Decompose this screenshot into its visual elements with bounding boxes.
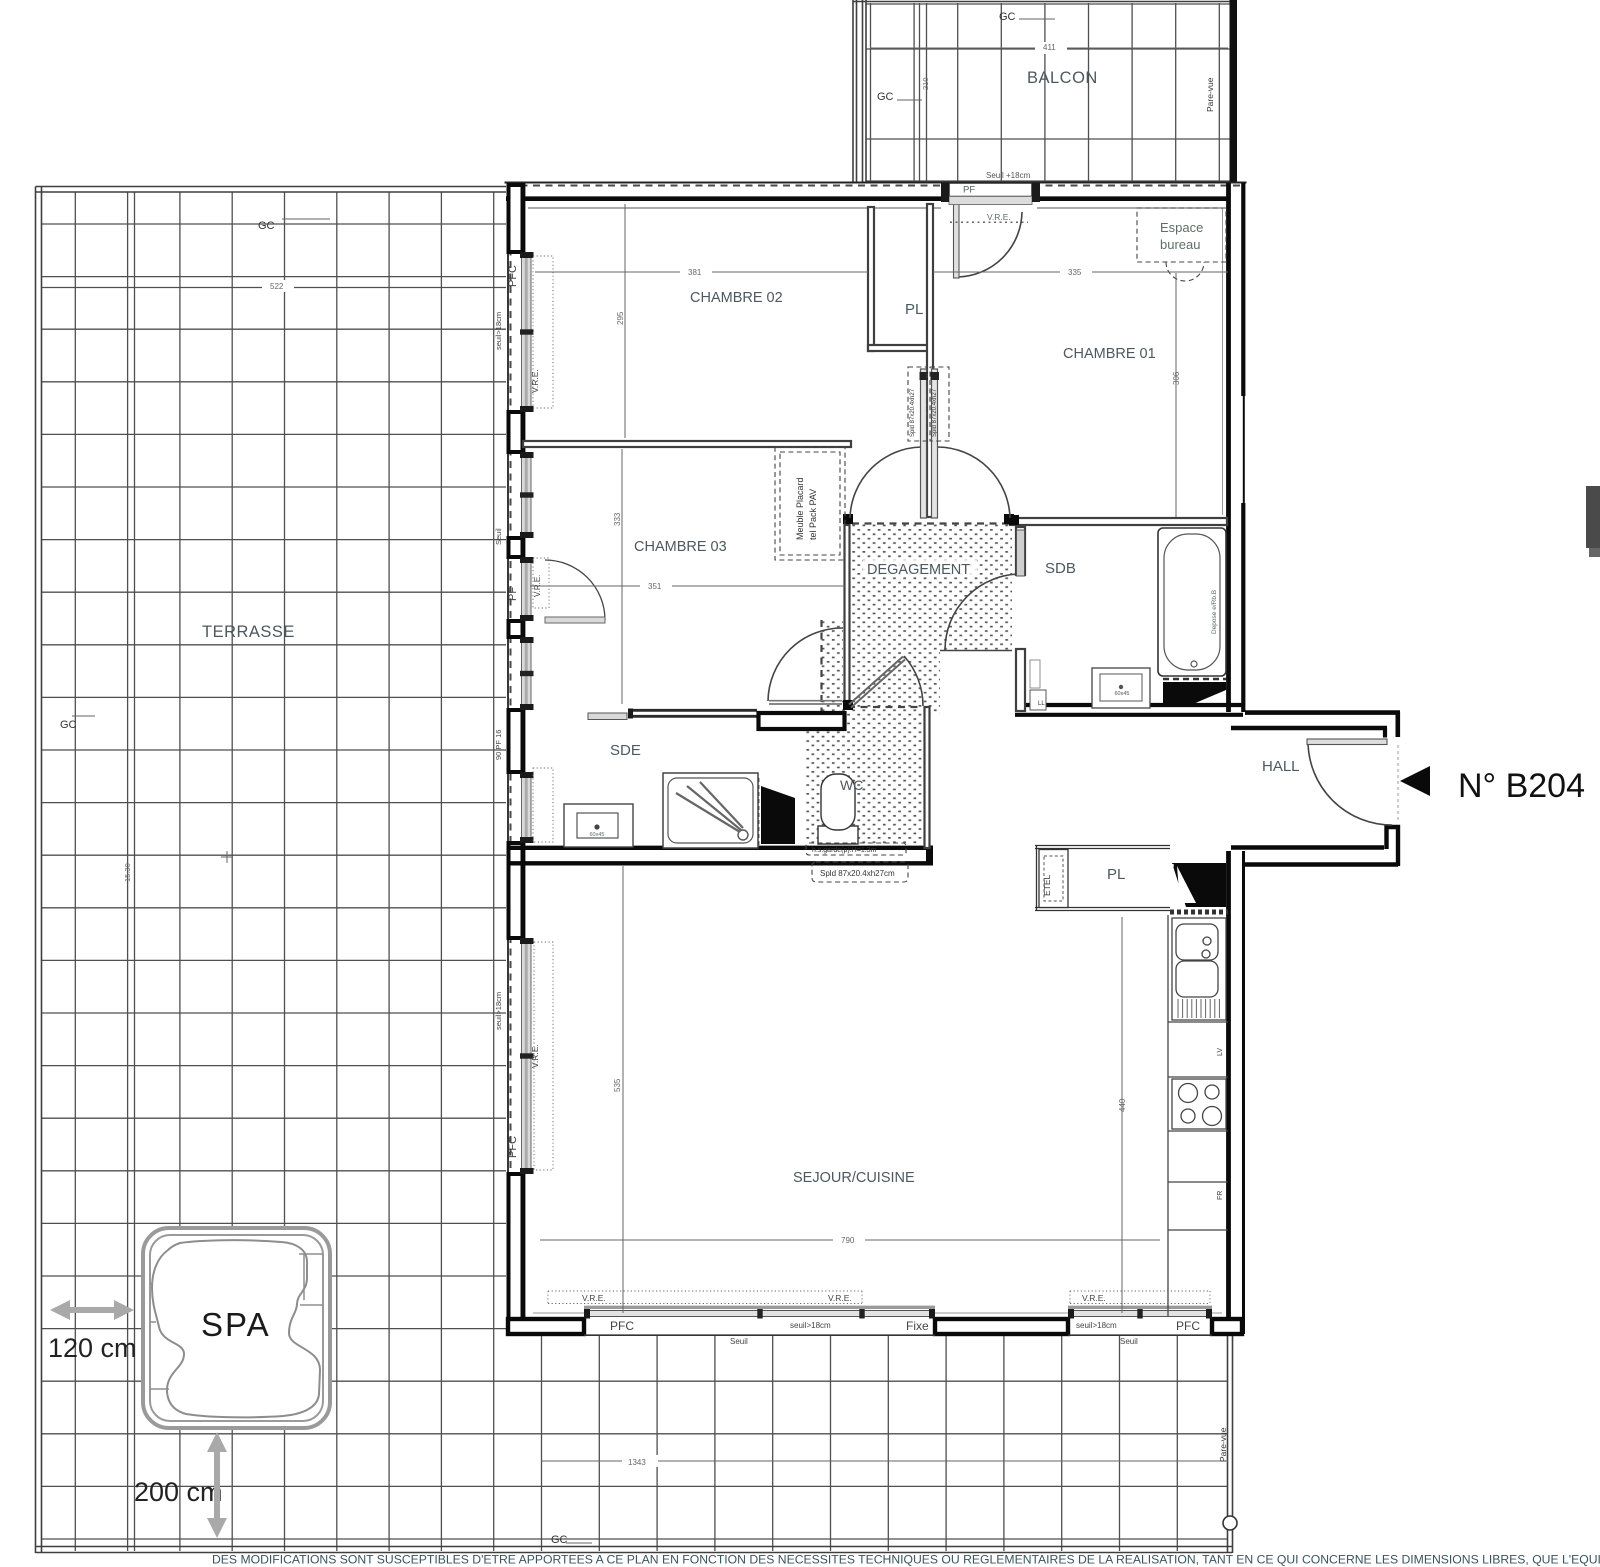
- svg-text:LV: LV: [1217, 1048, 1224, 1056]
- svg-text:Spld 87x20.4xh27: Spld 87x20.4xh27: [910, 388, 916, 437]
- svg-text:90 PF 16: 90 PF 16: [494, 730, 503, 760]
- svg-text:V.R.E.: V.R.E.: [828, 1293, 852, 1303]
- svg-text:Seuil: Seuil: [1120, 1337, 1138, 1346]
- svg-text:tel Pack PAV: tel Pack PAV: [808, 489, 818, 540]
- svg-text:BALCON: BALCON: [1027, 69, 1098, 87]
- svg-text:522: 522: [270, 282, 284, 291]
- svg-text:V.R.E.: V.R.E.: [582, 1293, 606, 1303]
- svg-text:V.R.E.: V.R.E.: [530, 369, 540, 393]
- svg-text:GC: GC: [877, 91, 894, 103]
- svg-text:Seuil +18cm: Seuil +18cm: [986, 171, 1031, 180]
- svg-text:1343: 1343: [628, 1458, 646, 1467]
- svg-text:seuil>18cm: seuil>18cm: [494, 992, 503, 1030]
- svg-text:HALL: HALL: [1262, 758, 1300, 775]
- svg-text:GC: GC: [551, 1534, 568, 1546]
- svg-text:335: 335: [1068, 268, 1082, 277]
- svg-text:Seuil: Seuil: [494, 528, 503, 545]
- svg-text:V.R.E.: V.R.E.: [530, 1044, 540, 1068]
- svg-text:h.s.garde(p):H=1.3m: h.s.garde(p):H=1.3m: [812, 847, 877, 854]
- svg-text:GC: GC: [258, 220, 275, 232]
- svg-text:V.R.E.: V.R.E.: [1082, 1293, 1106, 1303]
- svg-text:295: 295: [616, 311, 625, 325]
- svg-text:SDB: SDB: [1045, 560, 1076, 577]
- svg-text:60x45: 60x45: [590, 832, 605, 838]
- svg-text:LL: LL: [1038, 701, 1045, 707]
- svg-text:FR: FR: [1217, 1191, 1224, 1200]
- svg-text:PF: PF: [963, 185, 975, 196]
- svg-text:PFC: PFC: [507, 1136, 519, 1158]
- svg-text:200 cm: 200 cm: [134, 1477, 223, 1507]
- svg-text:381: 381: [688, 268, 702, 277]
- svg-text:351: 351: [648, 582, 662, 591]
- svg-text:GC: GC: [999, 11, 1016, 23]
- svg-text:Pare-vue: Pare-vue: [1205, 77, 1215, 112]
- svg-text:440: 440: [1118, 1098, 1127, 1112]
- svg-text:seuil>18cm: seuil>18cm: [1076, 1321, 1117, 1330]
- svg-text:535: 535: [613, 1078, 622, 1092]
- svg-text:Meuble Placard: Meuble Placard: [795, 477, 805, 540]
- svg-text:PFC: PFC: [610, 1319, 634, 1333]
- svg-text:Spld 87x20.4xh27cm: Spld 87x20.4xh27cm: [820, 869, 895, 878]
- svg-text:TERRASSE: TERRASSE: [202, 623, 295, 641]
- svg-text:15.30: 15.30: [123, 863, 132, 882]
- svg-text:V.R.E.: V.R.E.: [987, 212, 1011, 222]
- svg-text:306: 306: [1172, 371, 1181, 385]
- svg-text:SDE: SDE: [610, 742, 641, 759]
- svg-text:Pare-vue: Pare-vue: [1218, 1427, 1228, 1462]
- svg-text:Seuil: Seuil: [730, 1337, 748, 1346]
- svg-text:GC: GC: [60, 719, 77, 731]
- svg-text:DEGAGEMENT: DEGAGEMENT: [867, 562, 970, 578]
- svg-text:790: 790: [841, 1236, 855, 1245]
- svg-text:411: 411: [1043, 43, 1056, 52]
- svg-text:SEJOUR/CUISINE: SEJOUR/CUISINE: [793, 1170, 915, 1186]
- svg-text:CHAMBRE 01: CHAMBRE 01: [1063, 346, 1156, 362]
- svg-text:PFC: PFC: [507, 265, 519, 287]
- svg-text:bureau: bureau: [1160, 237, 1200, 252]
- svg-text:SPA: SPA: [201, 1306, 271, 1343]
- svg-text:PL: PL: [905, 301, 923, 318]
- svg-text:210: 210: [921, 77, 930, 90]
- svg-text:PFC: PFC: [1176, 1319, 1200, 1333]
- svg-text:V.R.E.: V.R.E.: [533, 575, 542, 597]
- svg-text:N° B204: N° B204: [1458, 767, 1585, 805]
- svg-text:seuil>18cm: seuil>18cm: [494, 312, 503, 350]
- svg-text:60x45: 60x45: [1115, 691, 1130, 697]
- svg-text:DES MODIFICATIONS SONT SUSCEPT: DES MODIFICATIONS SONT SUSCEPTIBLES D'ET…: [212, 1553, 1600, 1567]
- svg-text:Depose e/Rb.B: Depose e/Rb.B: [1211, 590, 1218, 634]
- svg-text:Espace: Espace: [1160, 220, 1203, 235]
- svg-text:333: 333: [613, 512, 622, 526]
- svg-text:Spld 87x20.4xh27: Spld 87x20.4xh27: [932, 388, 938, 437]
- svg-text:ETEL: ETEL: [1042, 874, 1052, 896]
- svg-text:PL: PL: [1107, 866, 1125, 883]
- svg-text:CHAMBRE 02: CHAMBRE 02: [690, 290, 783, 306]
- svg-text:120 cm: 120 cm: [48, 1333, 137, 1363]
- svg-text:seuil>18cm: seuil>18cm: [790, 1321, 831, 1330]
- svg-text:PF: PF: [507, 587, 519, 601]
- svg-text:Fixe: Fixe: [906, 1319, 929, 1333]
- svg-text:WC: WC: [840, 777, 863, 793]
- svg-text:CHAMBRE 03: CHAMBRE 03: [634, 539, 727, 555]
